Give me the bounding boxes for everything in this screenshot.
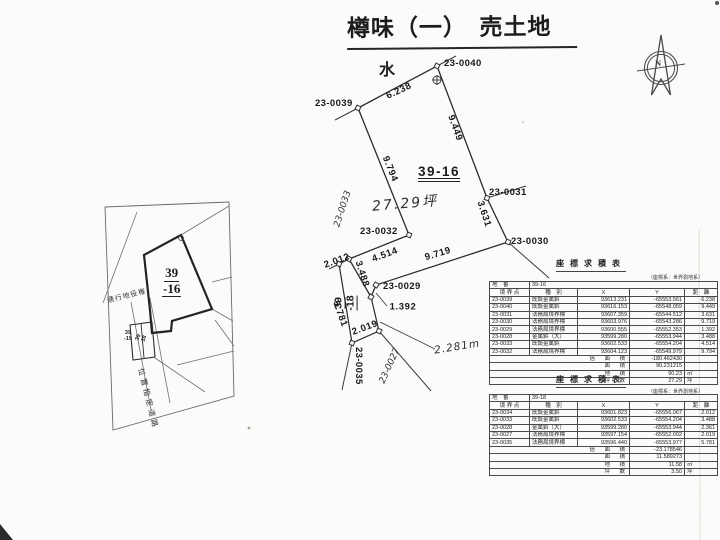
table-row: 23-0029法務局境界標93600.555-65552.3531.392 [490, 326, 718, 333]
point-label-23-0040: 23-0040 [444, 58, 482, 69]
table1-datum-note: （座標系：世界測地系） [648, 274, 703, 281]
summary-row: 面 積11.589273 [490, 454, 718, 461]
point-label-23-0039: 23-0039 [315, 98, 353, 109]
table-row: 23-0035法務局境界標93596.440-65553.9775.781 [490, 439, 718, 446]
table-row: 23-0033既設金属鋲93602.533-65554.2043.488 [490, 417, 718, 424]
sheet-title: 樽味（一） 売土地 [347, 7, 577, 50]
scanned-survey-sheet: 樽味（一） 売土地 N 水 23-0040 23-0039 23-0032 23… [0, 0, 720, 540]
summary-row: 倍 面 積-23.178546 [490, 446, 718, 453]
scan-corner-artifact [0, 524, 13, 540]
edge-distance: 1.392 [390, 302, 417, 313]
table-row: 23-0031法務局境界標93607.359-65544.5123.631 [490, 311, 718, 318]
coordinate-table-39-18: 地 番39-18 境 界 点種 別XY距 離 23-0034既設金属鋲93601… [489, 394, 718, 476]
point-label-23-0029: 23-0029 [383, 281, 421, 292]
table-row: 23-0033既設金属鋲93602.533-65554.2044.514 [490, 341, 718, 348]
summary-row: 坪 数3.50坪 [490, 468, 718, 475]
table-row: 23-0032法務局境界標93604.123-65549.9799.794 [490, 348, 718, 355]
table1-title: 座標求積表 [556, 258, 626, 272]
table-row: 23-0028金属鋲（大）93599.280-65553.9442.361 [490, 424, 718, 431]
summary-row: 地 積11.58㎡ [490, 461, 718, 468]
parcel-39-18-line2: -18 [346, 295, 358, 310]
compass-north-label: N [655, 58, 661, 68]
inset-parcel-line2: -16 [162, 282, 181, 298]
water-label: 水 [379, 56, 395, 80]
point-label-23-0030: 23-0030 [511, 236, 549, 247]
table-row: 23-0040既設金属鋲93616.153-65548.0599.449 [490, 304, 718, 311]
parcel-number-39-16: 39-16 [418, 164, 460, 182]
table-row: 23-0039既設金属鋲93613.231-65553.5616.238 [490, 296, 718, 303]
inset-map-lines [103, 202, 234, 430]
table-row: 23-0030法務局境界標93603.976-65543.2869.719 [490, 318, 718, 325]
inset-39-19-line2: -19 [124, 336, 132, 342]
point-label-23-0032: 23-0032 [360, 226, 398, 237]
summary-row: 倍 面 積-180.462430 [490, 355, 718, 362]
table-row: 23-0034既設金属鋲93601.823-65556.0672.012 [490, 409, 718, 416]
table-row: 23-0028金属鋲（大）93599.280-65553.9443.488 [490, 333, 718, 340]
point-label-23-0031: 23-0031 [489, 187, 527, 198]
inset-parcel-line1: 39 [164, 266, 179, 282]
summary-row: 面 積90.231215 [490, 363, 718, 370]
inset-small-parcel-39-19: 39 -19 [124, 331, 132, 343]
inset-parcel-number: 39 -16 [162, 266, 181, 297]
table-row: 23-0027法務局境界標93597.154-65552.0922.019 [490, 431, 718, 438]
table2-title: 座標求積表 [556, 374, 626, 388]
coordinate-table-39-16: 地 番39-16 境 界 点種 別XY距 離 23-0039既設金属鋲93613… [489, 281, 718, 385]
point-label-23-0035: 23-0035 [353, 347, 364, 385]
